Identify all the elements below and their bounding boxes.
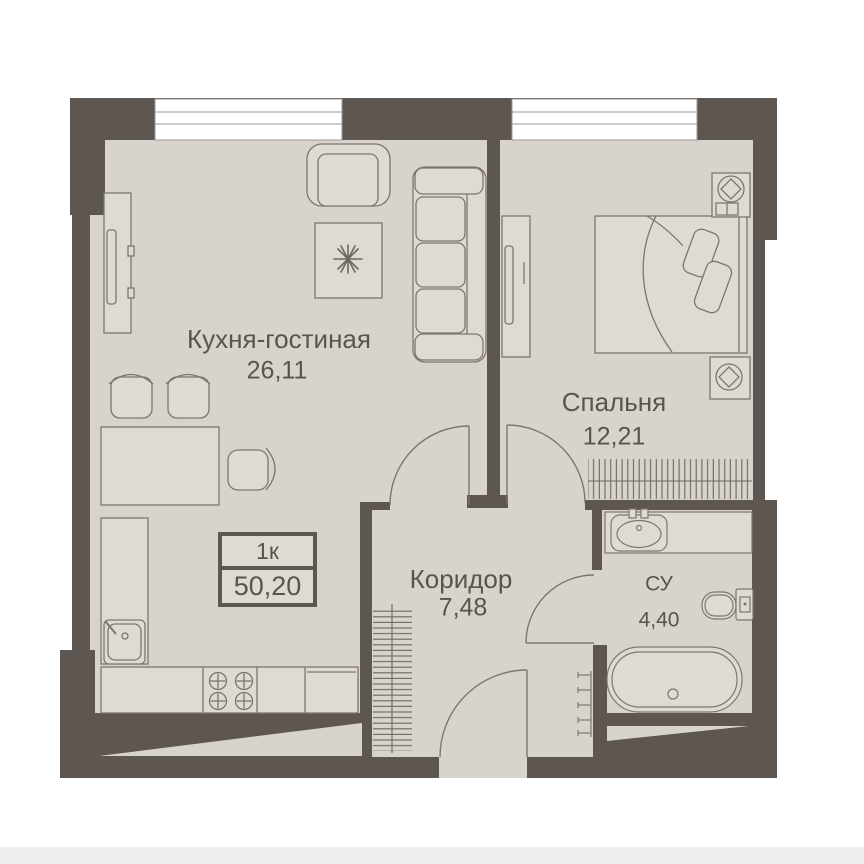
window-kitchen (155, 99, 342, 140)
room-area-bathroom: 4,40 (639, 610, 680, 631)
room-label-corridor: Коридор (410, 566, 513, 592)
footer-strip (0, 847, 864, 864)
kitchen-counter-bottom (101, 667, 358, 713)
room-label-kitchen-living: Кухня-гостиная (187, 326, 371, 352)
sofa (413, 167, 486, 362)
nightstand-top (712, 173, 750, 217)
washbasin (611, 509, 667, 551)
room-area-kitchen-living: 26,11 (247, 359, 308, 384)
room-area-bedroom: 12,21 (583, 425, 646, 450)
unit-total-area: 50,20 (222, 570, 313, 603)
nightstand-bottom (710, 357, 750, 399)
unit-type: 1к (222, 536, 313, 566)
floor-plan: Кухня-гостиная 26,11 Спальня 12,21 Корид… (0, 0, 864, 864)
tv-console (104, 193, 134, 333)
plant-icon (334, 245, 362, 273)
stool-2 (166, 375, 210, 419)
toilet (702, 589, 753, 620)
bathtub (607, 647, 742, 712)
window-bedroom (512, 99, 697, 140)
room-label-bedroom: Спальня (562, 389, 666, 415)
kitchen-sink (104, 620, 145, 664)
floor-plan-drawing (0, 0, 864, 864)
armchair (307, 144, 390, 206)
dining-table (101, 427, 219, 505)
wardrobe (502, 216, 530, 357)
unit-badge: 1к 50,20 (218, 532, 317, 607)
bedroom-radiator-hatch (588, 459, 752, 499)
room-label-bathroom: СУ (645, 574, 673, 595)
bed (595, 216, 747, 353)
stool-1 (109, 375, 153, 419)
room-area-corridor: 7,48 (439, 596, 488, 621)
corridor-closet-hatch (373, 604, 412, 753)
